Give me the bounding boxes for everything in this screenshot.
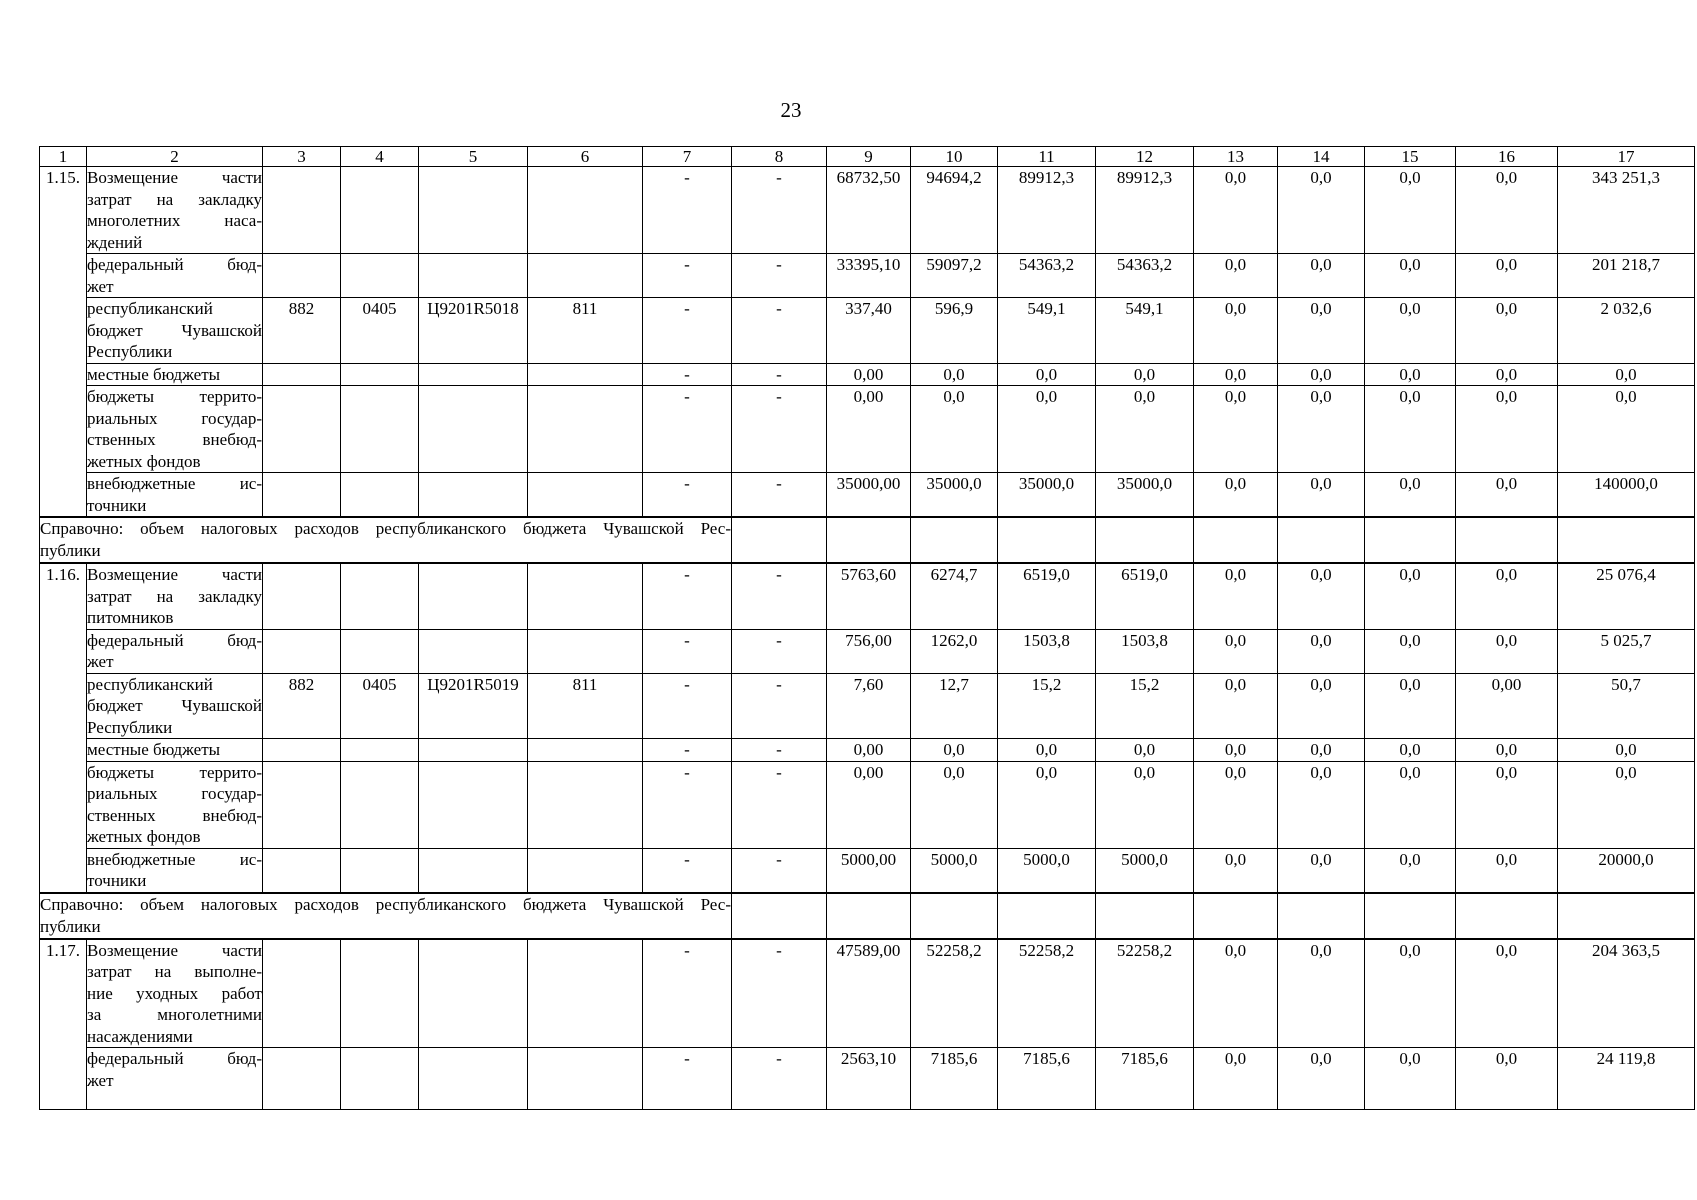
- code-cell: [419, 167, 528, 254]
- code-cell: Ц9201R5018: [419, 298, 528, 364]
- empty-cell: [732, 517, 827, 563]
- text-line: ние уходных работ: [87, 983, 262, 1005]
- value-cell: -: [643, 673, 732, 739]
- code-cell: [419, 386, 528, 473]
- value-cell: 59097,2: [911, 254, 998, 298]
- value-cell: 337,40: [827, 298, 911, 364]
- code-cell: [263, 254, 341, 298]
- text-line: риальных государ-: [87, 408, 262, 430]
- row-label: местные бюджеты: [87, 363, 263, 386]
- code-cell: [528, 761, 643, 848]
- code-cell: [263, 167, 341, 254]
- empty-cell: [911, 517, 998, 563]
- col-header-10: 10: [911, 147, 998, 167]
- code-cell: [263, 563, 341, 629]
- text-line: Справочно: объем налоговых расходов респ…: [40, 894, 731, 916]
- value-cell: 756,00: [827, 629, 911, 673]
- value-cell: 0,0: [1456, 363, 1558, 386]
- value-cell: 5000,0: [998, 848, 1096, 893]
- code-cell: [341, 386, 419, 473]
- code-cell: [263, 848, 341, 893]
- value-cell: 0,0: [1194, 298, 1278, 364]
- col-header-7: 7: [643, 147, 732, 167]
- value-cell: 0,0: [1456, 254, 1558, 298]
- value-cell: 0,0: [1278, 363, 1365, 386]
- value-cell: 15,2: [1096, 673, 1194, 739]
- table-row: бюджеты террито-риальных государ-ственны…: [40, 386, 1695, 473]
- col-header-14: 14: [1278, 147, 1365, 167]
- value-cell: 0,0: [1278, 673, 1365, 739]
- code-cell: [341, 629, 419, 673]
- value-cell: 0,0: [1278, 473, 1365, 518]
- value-cell: -: [643, 386, 732, 473]
- value-cell: 0,0: [998, 363, 1096, 386]
- value-cell: 0,0: [911, 761, 998, 848]
- value-cell: 0,0: [911, 739, 998, 762]
- text-line: Республики: [87, 341, 262, 363]
- value-cell: 0,0: [1194, 739, 1278, 762]
- text-line: жет: [87, 1070, 262, 1092]
- value-cell: 0,0: [1456, 473, 1558, 518]
- value-cell: 0,0: [1365, 629, 1456, 673]
- table-body: 1.15.Возмещение частизатрат на закладкум…: [40, 167, 1695, 1110]
- code-cell: [419, 1048, 528, 1110]
- value-cell: -: [643, 1048, 732, 1110]
- table-row: местные бюджеты--0,000,00,00,00,00,00,00…: [40, 739, 1695, 762]
- empty-cell: [1365, 517, 1456, 563]
- text-line: Республики: [87, 717, 262, 739]
- col-header-5: 5: [419, 147, 528, 167]
- code-cell: [528, 167, 643, 254]
- col-header-8: 8: [732, 147, 827, 167]
- code-cell: [263, 1048, 341, 1110]
- value-cell: 35000,0: [998, 473, 1096, 518]
- text-line: бюджеты террито-: [87, 762, 262, 784]
- empty-cell: [1456, 893, 1558, 939]
- note-text: Справочно: объем налоговых расходов респ…: [40, 893, 732, 939]
- value-cell: -: [732, 386, 827, 473]
- value-cell: 0,00: [1456, 673, 1558, 739]
- col-header-2: 2: [87, 147, 263, 167]
- code-cell: [263, 363, 341, 386]
- empty-cell: [1096, 517, 1194, 563]
- text-line: внебюджетные ис-: [87, 849, 262, 871]
- code-cell: [528, 848, 643, 893]
- value-cell: 33395,10: [827, 254, 911, 298]
- empty-cell: [1365, 893, 1456, 939]
- value-cell: 0,0: [1278, 761, 1365, 848]
- value-cell: 89912,3: [998, 167, 1096, 254]
- empty-cell: [1456, 517, 1558, 563]
- text-line: Возмещение части: [87, 167, 262, 189]
- row-label: федеральный бюд-жет: [87, 629, 263, 673]
- value-cell: 0,0: [1558, 386, 1695, 473]
- code-cell: [528, 629, 643, 673]
- code-cell: 0405: [341, 673, 419, 739]
- text-line: Справочно: объем налоговых расходов респ…: [40, 518, 731, 540]
- value-cell: 596,9: [911, 298, 998, 364]
- text-line: жет: [87, 651, 262, 673]
- table-row: федеральный бюд-жет--2563,107185,67185,6…: [40, 1048, 1695, 1110]
- value-cell: 0,0: [1194, 386, 1278, 473]
- text-line: за многолетними: [87, 1004, 262, 1026]
- value-cell: 1503,8: [998, 629, 1096, 673]
- code-cell: [528, 1048, 643, 1110]
- code-cell: [263, 739, 341, 762]
- value-cell: 0,0: [1096, 739, 1194, 762]
- text-line: ждений: [87, 232, 262, 254]
- row-label: внебюджетные ис-точники: [87, 473, 263, 518]
- table-row: Справочно: объем налоговых расходов респ…: [40, 517, 1695, 563]
- value-cell: -: [643, 363, 732, 386]
- header-row: 1234567891011121314151617: [40, 147, 1695, 167]
- text-line: жетных фондов: [87, 451, 262, 473]
- code-cell: 811: [528, 673, 643, 739]
- value-cell: 5 025,7: [1558, 629, 1695, 673]
- value-cell: 0,0: [1365, 848, 1456, 893]
- empty-cell: [1194, 893, 1278, 939]
- value-cell: -: [643, 473, 732, 518]
- value-cell: 1262,0: [911, 629, 998, 673]
- text-line: федеральный бюд-: [87, 630, 262, 652]
- value-cell: 0,0: [1456, 563, 1558, 629]
- table-row: федеральный бюд-жет--33395,1059097,25436…: [40, 254, 1695, 298]
- value-cell: 50,7: [1558, 673, 1695, 739]
- value-cell: 52258,2: [1096, 939, 1194, 1048]
- value-cell: 0,0: [1456, 298, 1558, 364]
- code-cell: Ц9201R5019: [419, 673, 528, 739]
- row-number: 1.15.: [40, 167, 87, 518]
- value-cell: -: [643, 739, 732, 762]
- value-cell: 0,0: [1194, 167, 1278, 254]
- table-row: республиканскийбюджет ЧувашскойРеспублик…: [40, 673, 1695, 739]
- value-cell: 5000,0: [911, 848, 998, 893]
- text-line: насаждениями: [87, 1026, 262, 1048]
- text-line: многолетних наса-: [87, 210, 262, 232]
- code-cell: [263, 761, 341, 848]
- value-cell: 0,0: [1278, 739, 1365, 762]
- value-cell: 54363,2: [1096, 254, 1194, 298]
- value-cell: 0,0: [1456, 761, 1558, 848]
- code-cell: [528, 563, 643, 629]
- value-cell: 0,0: [1278, 254, 1365, 298]
- value-cell: 5000,0: [1096, 848, 1194, 893]
- value-cell: 201 218,7: [1558, 254, 1695, 298]
- value-cell: 0,0: [998, 386, 1096, 473]
- code-cell: [341, 739, 419, 762]
- value-cell: 35000,00: [827, 473, 911, 518]
- value-cell: -: [732, 1048, 827, 1110]
- row-label: Возмещение частизатрат на закладкумногол…: [87, 167, 263, 254]
- note-text: Справочно: объем налоговых расходов респ…: [40, 517, 732, 563]
- value-cell: 0,0: [911, 386, 998, 473]
- row-label: федеральный бюд-жет: [87, 254, 263, 298]
- text-line: затрат на выполне-: [87, 961, 262, 983]
- text-line: затрат на закладку: [87, 189, 262, 211]
- value-cell: -: [732, 254, 827, 298]
- row-number: 1.16.: [40, 563, 87, 893]
- col-header-17: 17: [1558, 147, 1695, 167]
- value-cell: -: [643, 298, 732, 364]
- code-cell: [528, 473, 643, 518]
- code-cell: [419, 254, 528, 298]
- text-line: Возмещение части: [87, 564, 262, 586]
- empty-cell: [1278, 517, 1365, 563]
- value-cell: -: [732, 739, 827, 762]
- empty-cell: [1558, 517, 1695, 563]
- value-cell: 0,0: [1278, 167, 1365, 254]
- row-label: федеральный бюд-жет: [87, 1048, 263, 1110]
- value-cell: 6519,0: [1096, 563, 1194, 629]
- value-cell: 0,0: [1278, 629, 1365, 673]
- code-cell: [341, 363, 419, 386]
- code-cell: [263, 386, 341, 473]
- code-cell: [419, 473, 528, 518]
- value-cell: -: [732, 298, 827, 364]
- value-cell: 0,0: [1558, 363, 1695, 386]
- row-label: республиканскийбюджет ЧувашскойРеспублик…: [87, 298, 263, 364]
- value-cell: 0,0: [1278, 939, 1365, 1048]
- col-header-15: 15: [1365, 147, 1456, 167]
- value-cell: 7185,6: [1096, 1048, 1194, 1110]
- value-cell: 6519,0: [998, 563, 1096, 629]
- value-cell: -: [643, 563, 732, 629]
- row-label: Возмещение частизатрат на закладкупитомн…: [87, 563, 263, 629]
- col-header-4: 4: [341, 147, 419, 167]
- code-cell: [341, 939, 419, 1048]
- value-cell: 0,0: [1194, 761, 1278, 848]
- text-line: бюджет Чувашской: [87, 320, 262, 342]
- value-cell: 52258,2: [911, 939, 998, 1048]
- value-cell: 0,0: [1194, 673, 1278, 739]
- value-cell: 94694,2: [911, 167, 998, 254]
- value-cell: 25 076,4: [1558, 563, 1695, 629]
- value-cell: 140000,0: [1558, 473, 1695, 518]
- value-cell: 47589,00: [827, 939, 911, 1048]
- code-cell: [419, 629, 528, 673]
- code-cell: 882: [263, 298, 341, 364]
- value-cell: 0,0: [1194, 629, 1278, 673]
- row-label: местные бюджеты: [87, 739, 263, 762]
- table-row: республиканскийбюджет ЧувашскойРеспублик…: [40, 298, 1695, 364]
- value-cell: 0,0: [1456, 1048, 1558, 1110]
- value-cell: 0,0: [1365, 1048, 1456, 1110]
- table-header: 1234567891011121314151617: [40, 147, 1695, 167]
- col-header-1: 1: [40, 147, 87, 167]
- value-cell: 0,0: [1365, 254, 1456, 298]
- text-line: Возмещение части: [87, 940, 262, 962]
- value-cell: 0,0: [1456, 167, 1558, 254]
- value-cell: -: [732, 563, 827, 629]
- code-cell: [341, 473, 419, 518]
- value-cell: 0,0: [1365, 167, 1456, 254]
- text-line: точники: [87, 495, 262, 517]
- value-cell: -: [732, 761, 827, 848]
- code-cell: [419, 363, 528, 386]
- code-cell: [419, 939, 528, 1048]
- value-cell: -: [643, 761, 732, 848]
- text-line: ственных внебюд-: [87, 429, 262, 451]
- col-header-12: 12: [1096, 147, 1194, 167]
- row-label: бюджеты террито-риальных государ-ственны…: [87, 761, 263, 848]
- col-header-6: 6: [528, 147, 643, 167]
- value-cell: 0,0: [1194, 254, 1278, 298]
- code-cell: [419, 739, 528, 762]
- text-line: питомников: [87, 607, 262, 629]
- text-line: затрат на закладку: [87, 586, 262, 608]
- table-row: 1.15.Возмещение частизатрат на закладкум…: [40, 167, 1695, 254]
- value-cell: 2563,10: [827, 1048, 911, 1110]
- row-label: внебюджетные ис-точники: [87, 848, 263, 893]
- value-cell: 0,00: [827, 386, 911, 473]
- value-cell: 1503,8: [1096, 629, 1194, 673]
- empty-cell: [1278, 893, 1365, 939]
- text-line: бюджеты террито-: [87, 386, 262, 408]
- row-number: 1.17.: [40, 939, 87, 1110]
- value-cell: -: [732, 473, 827, 518]
- value-cell: 89912,3: [1096, 167, 1194, 254]
- value-cell: 0,0: [1194, 363, 1278, 386]
- value-cell: -: [732, 848, 827, 893]
- value-cell: 0,0: [1558, 761, 1695, 848]
- value-cell: 7185,6: [998, 1048, 1096, 1110]
- code-cell: [419, 563, 528, 629]
- empty-cell: [1194, 517, 1278, 563]
- text-line: республиканский: [87, 674, 262, 696]
- text-line: точники: [87, 870, 262, 892]
- value-cell: 0,0: [1365, 739, 1456, 762]
- value-cell: 0,0: [1365, 386, 1456, 473]
- table-row: бюджеты террито-риальных государ-ственны…: [40, 761, 1695, 848]
- empty-cell: [998, 517, 1096, 563]
- row-label: республиканскийбюджет ЧувашскойРеспублик…: [87, 673, 263, 739]
- code-cell: 0405: [341, 298, 419, 364]
- empty-cell: [911, 893, 998, 939]
- value-cell: 0,0: [1278, 848, 1365, 893]
- code-cell: [341, 563, 419, 629]
- budget-table: 1234567891011121314151617 1.15.Возмещени…: [39, 146, 1695, 1110]
- value-cell: 0,0: [1365, 363, 1456, 386]
- value-cell: 0,0: [1456, 848, 1558, 893]
- code-cell: [528, 939, 643, 1048]
- text-line: бюджет Чувашской: [87, 695, 262, 717]
- code-cell: [419, 848, 528, 893]
- text-line: жетных фондов: [87, 826, 262, 848]
- row-label: Возмещение частизатрат на выполне-ние ух…: [87, 939, 263, 1048]
- value-cell: 0,0: [998, 761, 1096, 848]
- value-cell: 0,00: [827, 739, 911, 762]
- text-line: федеральный бюд-: [87, 1048, 262, 1070]
- value-cell: -: [643, 167, 732, 254]
- value-cell: 549,1: [998, 298, 1096, 364]
- value-cell: 52258,2: [998, 939, 1096, 1048]
- col-header-13: 13: [1194, 147, 1278, 167]
- value-cell: 0,0: [1365, 473, 1456, 518]
- empty-cell: [998, 893, 1096, 939]
- value-cell: 549,1: [1096, 298, 1194, 364]
- value-cell: 0,0: [1096, 386, 1194, 473]
- table-row: 1.17.Возмещение частизатрат на выполне-н…: [40, 939, 1695, 1048]
- value-cell: 0,0: [1365, 563, 1456, 629]
- text-line: ственных внебюд-: [87, 805, 262, 827]
- value-cell: 0,0: [1194, 563, 1278, 629]
- empty-cell: [827, 893, 911, 939]
- empty-cell: [1558, 893, 1695, 939]
- value-cell: 0,0: [998, 739, 1096, 762]
- text-line: внебюджетные ис-: [87, 473, 262, 495]
- value-cell: 7,60: [827, 673, 911, 739]
- value-cell: 20000,0: [1558, 848, 1695, 893]
- value-cell: -: [732, 673, 827, 739]
- value-cell: 0,0: [1365, 939, 1456, 1048]
- empty-cell: [1096, 893, 1194, 939]
- value-cell: 15,2: [998, 673, 1096, 739]
- value-cell: -: [643, 629, 732, 673]
- empty-cell: [732, 893, 827, 939]
- value-cell: 0,0: [1278, 1048, 1365, 1110]
- value-cell: 54363,2: [998, 254, 1096, 298]
- code-cell: [263, 939, 341, 1048]
- value-cell: 0,0: [1194, 1048, 1278, 1110]
- value-cell: 0,0: [1456, 739, 1558, 762]
- empty-cell: [827, 517, 911, 563]
- value-cell: 35000,0: [1096, 473, 1194, 518]
- code-cell: [528, 254, 643, 298]
- value-cell: 7185,6: [911, 1048, 998, 1110]
- code-cell: 882: [263, 673, 341, 739]
- value-cell: -: [643, 848, 732, 893]
- table-row: 1.16.Возмещение частизатрат на закладкуп…: [40, 563, 1695, 629]
- value-cell: 5000,00: [827, 848, 911, 893]
- text-line: республиканский: [87, 298, 262, 320]
- value-cell: 0,00: [827, 761, 911, 848]
- code-cell: [341, 167, 419, 254]
- code-cell: [341, 761, 419, 848]
- text-line: федеральный бюд-: [87, 254, 262, 276]
- value-cell: 343 251,3: [1558, 167, 1695, 254]
- value-cell: 0,00: [827, 363, 911, 386]
- code-cell: [263, 473, 341, 518]
- value-cell: 0,0: [1558, 739, 1695, 762]
- col-header-11: 11: [998, 147, 1096, 167]
- value-cell: 0,0: [1096, 761, 1194, 848]
- code-cell: 811: [528, 298, 643, 364]
- value-cell: 0,0: [1096, 363, 1194, 386]
- value-cell: 5763,60: [827, 563, 911, 629]
- value-cell: 12,7: [911, 673, 998, 739]
- code-cell: [419, 761, 528, 848]
- value-cell: 204 363,5: [1558, 939, 1695, 1048]
- value-cell: 0,0: [1456, 629, 1558, 673]
- value-cell: 0,0: [1194, 473, 1278, 518]
- col-header-3: 3: [263, 147, 341, 167]
- value-cell: 0,0: [1278, 386, 1365, 473]
- value-cell: 0,0: [1194, 939, 1278, 1048]
- col-header-9: 9: [827, 147, 911, 167]
- value-cell: 0,0: [1278, 563, 1365, 629]
- value-cell: -: [643, 254, 732, 298]
- text-line: местные бюджеты: [87, 364, 262, 386]
- text-line: жет: [87, 276, 262, 298]
- code-cell: [341, 254, 419, 298]
- value-cell: -: [732, 363, 827, 386]
- code-cell: [341, 1048, 419, 1110]
- code-cell: [263, 629, 341, 673]
- text-line: публики: [40, 916, 731, 938]
- text-line: публики: [40, 540, 731, 562]
- value-cell: -: [732, 939, 827, 1048]
- code-cell: [341, 848, 419, 893]
